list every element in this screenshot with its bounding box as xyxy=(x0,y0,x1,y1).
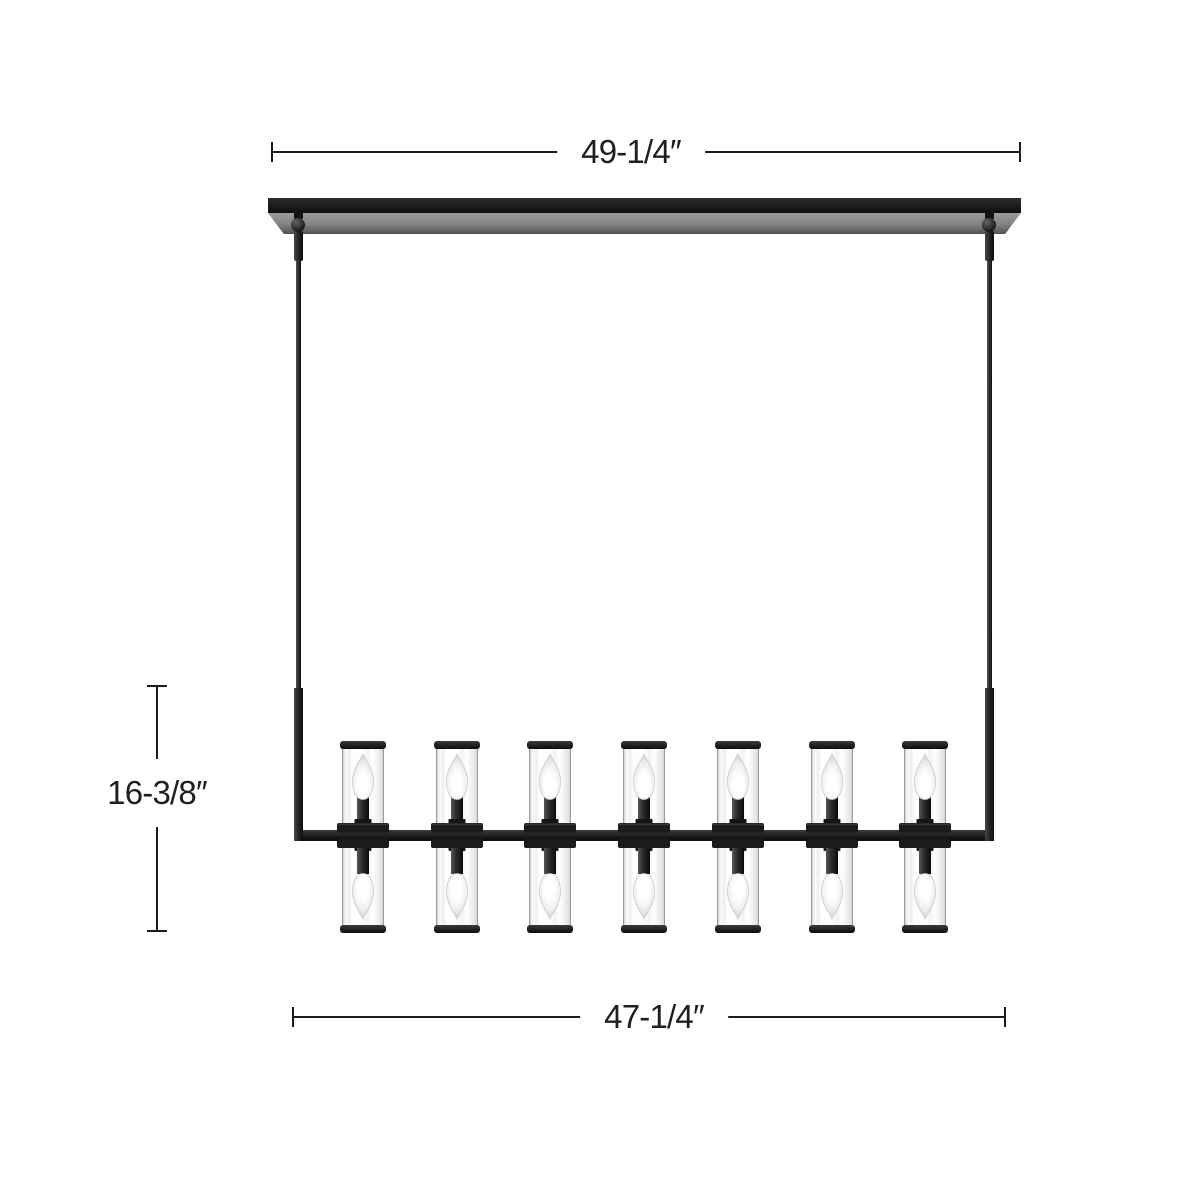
upper-shade-cap xyxy=(902,741,948,749)
lower-bulb-socket xyxy=(357,848,369,874)
upper-candle-bulb xyxy=(727,754,748,800)
upper-shade-cap xyxy=(715,741,761,749)
upper-candle-bulb xyxy=(540,754,561,800)
lower-bulb-glow xyxy=(452,880,462,897)
lower-bulb-glow xyxy=(733,880,743,897)
upper-bulb-glow xyxy=(733,777,743,794)
upper-shade-cap xyxy=(434,741,480,749)
upper-collar-highlight xyxy=(525,824,575,826)
lower-candle-bulb xyxy=(727,874,748,920)
dimension-tick xyxy=(1019,142,1021,162)
lower-bulb-socket xyxy=(826,848,838,874)
bottom-width-dimension: 47-1/4″ xyxy=(292,1007,1006,1027)
upper-bulb-socket xyxy=(451,797,463,823)
lower-candle-bulb xyxy=(634,874,655,920)
lower-socket-flare xyxy=(636,845,653,851)
upper-glass-shade xyxy=(343,748,384,828)
upper-collar-highlight xyxy=(900,824,950,826)
upper-collar-highlight xyxy=(338,824,388,826)
lower-glass-shade xyxy=(343,847,384,927)
fixture-frame-bar xyxy=(294,830,993,841)
lower-shade-cap xyxy=(809,925,855,933)
upper-bulb-glow xyxy=(639,777,649,794)
lower-glass-shade xyxy=(811,847,852,927)
upper-bulb-glow xyxy=(545,777,555,794)
upper-socket-flare xyxy=(448,819,465,825)
upper-bulb-socket xyxy=(826,797,838,823)
upper-glass-shade xyxy=(436,748,477,828)
upper-bulb-socket xyxy=(544,797,556,823)
rod-sleeve-left xyxy=(294,688,303,841)
left-height-dimension: 16-3/8″ xyxy=(147,685,167,932)
lower-glass-shade xyxy=(717,847,758,927)
rod-sleeve-right xyxy=(985,688,994,841)
suspension-rod-right xyxy=(987,256,992,692)
upper-glass-shade xyxy=(811,748,852,828)
lower-bulb-glow xyxy=(545,880,555,897)
upper-collar-highlight xyxy=(713,824,763,826)
upper-bulb-glow xyxy=(920,777,930,794)
suspension-rod-left xyxy=(296,256,301,692)
dimension-tick xyxy=(1004,1007,1006,1027)
lower-bulb-glow xyxy=(639,880,649,897)
rod-swivel-ball-left xyxy=(291,218,305,232)
lower-shade-cap xyxy=(715,925,761,933)
upper-bulb-glow xyxy=(827,777,837,794)
upper-bulb-socket xyxy=(357,797,369,823)
upper-bulb-socket xyxy=(919,797,931,823)
upper-glass-shade xyxy=(717,748,758,828)
lower-socket-flare xyxy=(448,845,465,851)
top-width-dimension: 49-1/4″ xyxy=(271,142,1021,162)
upper-socket-flare xyxy=(729,819,746,825)
upper-socket-flare xyxy=(917,819,934,825)
rod-swivel-ball-right xyxy=(982,218,996,232)
lower-bulb-socket xyxy=(544,848,556,874)
upper-bulb-socket xyxy=(732,797,744,823)
lower-socket-flare xyxy=(823,845,840,851)
dimension-tick xyxy=(147,930,167,932)
upper-shade-cap xyxy=(527,741,573,749)
lower-bulb-socket xyxy=(638,848,650,874)
upper-glass-shade xyxy=(624,748,665,828)
upper-collar-highlight xyxy=(432,824,482,826)
rod-coupler-right xyxy=(985,231,994,261)
lower-socket-flare xyxy=(917,845,934,851)
lower-candle-bulb xyxy=(915,874,936,920)
upper-bulb-glow xyxy=(452,777,462,794)
lower-candle-bulb xyxy=(353,874,374,920)
lower-candle-bulb xyxy=(446,874,467,920)
upper-collar-highlight xyxy=(619,824,669,826)
upper-socket-flare xyxy=(355,819,372,825)
upper-collar-highlight xyxy=(807,824,857,826)
lower-shade-cap xyxy=(527,925,573,933)
lower-bulb-socket xyxy=(919,848,931,874)
upper-socket-flare xyxy=(542,819,559,825)
upper-candle-bulb xyxy=(353,754,374,800)
lower-bulb-socket xyxy=(451,848,463,874)
upper-shade-cap xyxy=(340,741,386,749)
lower-glass-shade xyxy=(436,847,477,927)
ceiling-canopy xyxy=(268,198,1021,213)
upper-candle-bulb xyxy=(821,754,842,800)
upper-candle-bulb xyxy=(634,754,655,800)
lower-socket-flare xyxy=(355,845,372,851)
upper-shade-cap xyxy=(809,741,855,749)
upper-glass-shade xyxy=(530,748,571,828)
lower-socket-flare xyxy=(542,845,559,851)
canopy-underside xyxy=(268,213,1021,234)
diagram-canvas: 49-1/4″ xyxy=(0,0,1200,1200)
left-height-label: 16-3/8″ xyxy=(97,759,217,827)
lower-shade-cap xyxy=(434,925,480,933)
upper-candle-bulb xyxy=(446,754,467,800)
lower-glass-shade xyxy=(624,847,665,927)
lower-glass-shade xyxy=(905,847,946,927)
bottom-width-label: 47-1/4″ xyxy=(580,997,728,1037)
lower-shade-cap xyxy=(902,925,948,933)
lower-bulb-glow xyxy=(827,880,837,897)
lower-candle-bulb xyxy=(821,874,842,920)
lower-socket-flare xyxy=(729,845,746,851)
upper-bulb-glow xyxy=(358,777,368,794)
lower-bulb-socket xyxy=(732,848,744,874)
lower-bulb-glow xyxy=(358,880,368,897)
upper-shade-cap xyxy=(621,741,667,749)
top-width-label: 49-1/4″ xyxy=(557,132,705,172)
upper-candle-bulb xyxy=(915,754,936,800)
lower-glass-shade xyxy=(530,847,571,927)
upper-socket-flare xyxy=(823,819,840,825)
upper-bulb-socket xyxy=(638,797,650,823)
rod-coupler-left xyxy=(294,231,303,261)
lower-bulb-glow xyxy=(920,880,930,897)
lower-shade-cap xyxy=(340,925,386,933)
lower-candle-bulb xyxy=(540,874,561,920)
upper-socket-flare xyxy=(636,819,653,825)
lower-shade-cap xyxy=(621,925,667,933)
upper-glass-shade xyxy=(905,748,946,828)
